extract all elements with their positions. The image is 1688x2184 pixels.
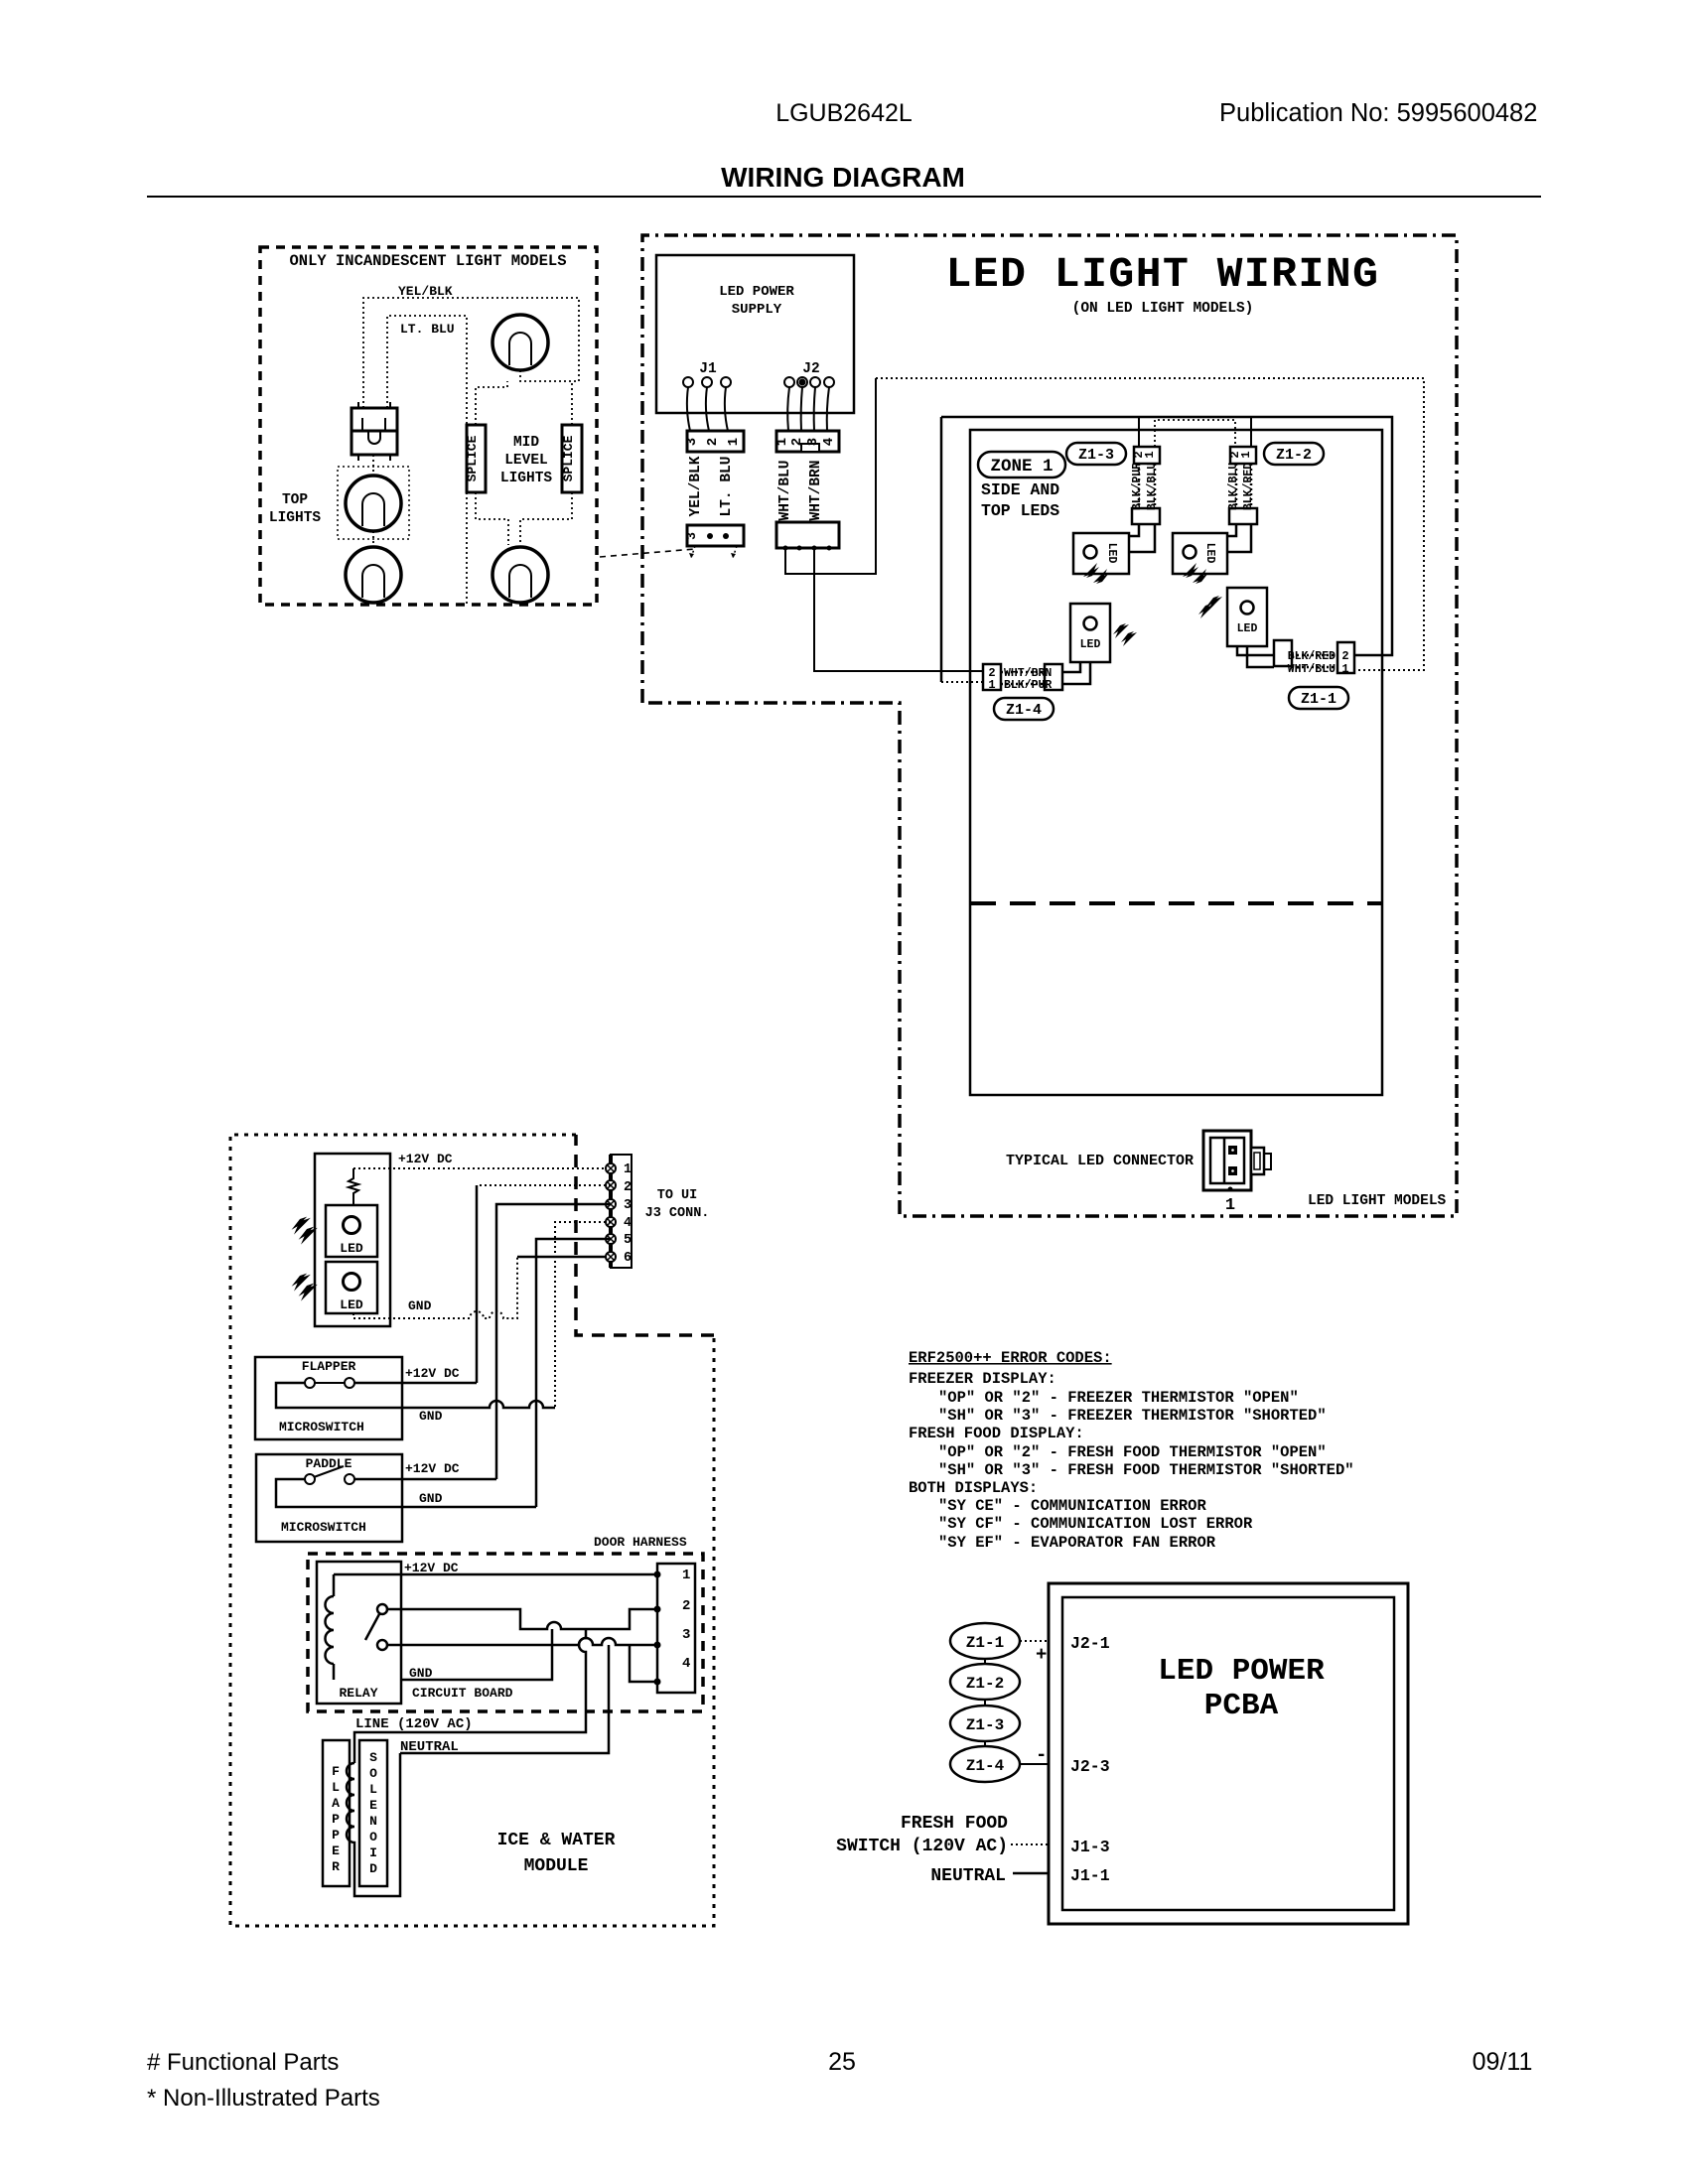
- svg-text:MID: MID: [513, 435, 539, 451]
- svg-text:1: 1: [774, 438, 790, 446]
- svg-text:25: 25: [828, 2048, 856, 2076]
- svg-text:L: L: [332, 1780, 340, 1795]
- svg-text:I: I: [369, 1845, 377, 1860]
- svg-text:J1-3: J1-3: [1070, 1838, 1110, 1856]
- svg-text:MICROSWITCH: MICROSWITCH: [279, 1420, 364, 1434]
- svg-text:P: P: [332, 1828, 340, 1843]
- svg-text:"SH" OR "3" - FRESH FOOD THERM: "SH" OR "3" - FRESH FOOD THERMISTOR "SHO…: [938, 1461, 1354, 1479]
- svg-text:"SH" OR "3" - FREEZER THERMIST: "SH" OR "3" - FREEZER THERMISTOR "SHORTE…: [938, 1407, 1327, 1425]
- svg-text:J2-1: J2-1: [1070, 1634, 1110, 1653]
- svg-text:+12V DC: +12V DC: [405, 1366, 460, 1381]
- svg-text:Z1-3: Z1-3: [966, 1716, 1004, 1734]
- svg-text:"SY CE" - COMMUNICATION ERROR: "SY CE" - COMMUNICATION ERROR: [938, 1497, 1206, 1515]
- svg-text:3: 3: [684, 438, 700, 446]
- svg-text:# Functional Parts: # Functional Parts: [147, 2049, 339, 2076]
- svg-text:"SY EF" - EVAPORATOR FAN ERROR: "SY EF" - EVAPORATOR FAN ERROR: [938, 1534, 1216, 1552]
- svg-text:5: 5: [624, 1233, 632, 1248]
- svg-text:O: O: [369, 1766, 377, 1781]
- svg-text:WHT/BLU: WHT/BLU: [1288, 663, 1336, 676]
- svg-text:LGUB2642L: LGUB2642L: [775, 99, 913, 127]
- svg-text:LEVEL: LEVEL: [504, 453, 548, 469]
- svg-text:BOTH DISPLAYS:: BOTH DISPLAYS:: [909, 1479, 1038, 1497]
- svg-text:1: 1: [988, 678, 995, 692]
- svg-text:-: -: [1036, 1744, 1047, 1766]
- svg-text:P: P: [332, 1812, 340, 1827]
- svg-text:2: 2: [1341, 649, 1348, 663]
- svg-text:2: 2: [705, 438, 721, 446]
- svg-text:ICE & WATER: ICE & WATER: [497, 1831, 616, 1850]
- svg-text:2: 2: [682, 1598, 690, 1614]
- svg-text:LED: LED: [1203, 543, 1216, 564]
- svg-text:ZONE 1: ZONE 1: [990, 457, 1053, 477]
- svg-text:J2-3: J2-3: [1070, 1757, 1110, 1776]
- svg-text:4: 4: [682, 1656, 690, 1672]
- svg-text:L: L: [369, 1782, 377, 1797]
- svg-text:ONLY INCANDESCENT LIGHT MODELS: ONLY INCANDESCENT LIGHT MODELS: [289, 252, 566, 270]
- svg-text:YEL/BLK: YEL/BLK: [398, 284, 453, 299]
- svg-text:LT. BLU: LT. BLU: [719, 457, 735, 517]
- svg-text:R: R: [332, 1859, 340, 1874]
- svg-text:Z1-1: Z1-1: [966, 1634, 1004, 1652]
- svg-text:4: 4: [624, 1216, 632, 1231]
- svg-text:E: E: [332, 1843, 340, 1858]
- svg-text:BLK/RED: BLK/RED: [1288, 650, 1336, 663]
- svg-text:SPLICE: SPLICE: [465, 435, 480, 481]
- svg-text:1: 1: [1341, 662, 1348, 676]
- svg-text:WHT/BRN: WHT/BRN: [808, 461, 824, 521]
- svg-text:J2: J2: [802, 361, 819, 377]
- svg-text:YEL/BLK: YEL/BLK: [688, 456, 704, 516]
- svg-text:3: 3: [805, 438, 821, 446]
- svg-text:2: 2: [624, 1180, 632, 1195]
- svg-text:(ON LED LIGHT MODELS): (ON LED LIGHT MODELS): [1072, 301, 1254, 317]
- svg-text:LED: LED: [1237, 622, 1258, 635]
- svg-text:E: E: [369, 1798, 377, 1813]
- svg-text:LED: LED: [340, 1241, 363, 1256]
- svg-text:Z1-3: Z1-3: [1078, 447, 1114, 464]
- svg-text:NEUTRAL: NEUTRAL: [930, 1866, 1006, 1886]
- svg-text:ERF2500++ ERROR CODES:: ERF2500++ ERROR CODES:: [909, 1349, 1112, 1367]
- svg-text:BLK/PUR: BLK/PUR: [1131, 463, 1144, 510]
- svg-text:TYPICAL LED CONNECTOR: TYPICAL LED CONNECTOR: [1006, 1153, 1194, 1169]
- svg-text:DOOR HARNESS: DOOR HARNESS: [594, 1535, 687, 1550]
- svg-text:Z1-2: Z1-2: [966, 1675, 1004, 1693]
- svg-text:1: 1: [1143, 451, 1157, 458]
- svg-text:MODULE: MODULE: [524, 1856, 589, 1876]
- svg-text:WHT/BLU: WHT/BLU: [777, 461, 793, 521]
- svg-text:* Non-Illustrated Parts: * Non-Illustrated Parts: [147, 2085, 380, 2112]
- svg-text:TOP LEDS: TOP LEDS: [981, 501, 1059, 520]
- svg-text:LED: LED: [1080, 638, 1101, 651]
- svg-text:LED POWER: LED POWER: [719, 284, 794, 300]
- svg-text:FRESH FOOD: FRESH FOOD: [901, 1814, 1008, 1834]
- svg-text:LT. BLU: LT. BLU: [400, 322, 455, 337]
- svg-text:LED POWER: LED POWER: [1158, 1654, 1325, 1689]
- svg-text:Publication No: 5995600482: Publication No: 5995600482: [1219, 99, 1537, 127]
- svg-text:S: S: [369, 1750, 377, 1765]
- svg-text:GND: GND: [419, 1491, 443, 1506]
- svg-text:LED: LED: [340, 1297, 363, 1312]
- svg-text:"OP" OR "2" - FRESH FOOD THERM: "OP" OR "2" - FRESH FOOD THERMISTOR "OPE…: [938, 1443, 1327, 1461]
- svg-text:LINE (120V AC): LINE (120V AC): [355, 1716, 473, 1732]
- svg-text:3: 3: [684, 532, 699, 540]
- svg-text:LED: LED: [1105, 543, 1118, 564]
- svg-text:2: 2: [789, 438, 805, 446]
- svg-text:TO UI: TO UI: [657, 1188, 698, 1203]
- svg-text:BLK/BLU: BLK/BLU: [1146, 463, 1159, 510]
- svg-text:BLK/PUR: BLK/PUR: [1004, 679, 1052, 692]
- svg-text:"SY CF" - COMMUNICATION LOST E: "SY CF" - COMMUNICATION LOST ERROR: [938, 1515, 1253, 1533]
- svg-text:Z1-1: Z1-1: [1301, 691, 1336, 708]
- svg-text:09/11: 09/11: [1473, 2048, 1533, 2076]
- svg-text:LED LIGHT WIRING: LED LIGHT WIRING: [946, 250, 1380, 299]
- svg-text:Z1-4: Z1-4: [966, 1757, 1005, 1775]
- svg-text:GND: GND: [419, 1409, 443, 1424]
- svg-text:FRESH FOOD DISPLAY:: FRESH FOOD DISPLAY:: [909, 1425, 1084, 1442]
- svg-text:F: F: [332, 1764, 340, 1779]
- svg-text:N: N: [369, 1814, 377, 1829]
- svg-text:SUPPLY: SUPPLY: [732, 302, 782, 318]
- svg-text:6: 6: [624, 1251, 632, 1266]
- svg-text:SIDE AND: SIDE AND: [981, 480, 1059, 499]
- svg-text:FLAPPER: FLAPPER: [302, 1359, 356, 1374]
- svg-text:1: 1: [1239, 451, 1253, 458]
- svg-text:PADDLE: PADDLE: [306, 1456, 352, 1471]
- svg-text:GND: GND: [408, 1298, 432, 1313]
- svg-text:MICROSWITCH: MICROSWITCH: [281, 1520, 366, 1535]
- svg-text:+: +: [1036, 1644, 1047, 1666]
- svg-text:J1-1: J1-1: [1070, 1866, 1110, 1885]
- svg-text:BLK/RED: BLK/RED: [1242, 463, 1255, 510]
- svg-text:FREEZER DISPLAY:: FREEZER DISPLAY:: [909, 1370, 1056, 1388]
- svg-text:J3 CONN.: J3 CONN.: [645, 1206, 710, 1221]
- svg-text:J1: J1: [699, 361, 717, 377]
- svg-text:+12V DC: +12V DC: [405, 1461, 460, 1476]
- svg-text:3: 3: [682, 1627, 690, 1643]
- svg-text:O: O: [369, 1830, 377, 1844]
- svg-text:Z1-2: Z1-2: [1276, 447, 1312, 464]
- svg-text:1: 1: [682, 1568, 690, 1583]
- svg-text:PCBA: PCBA: [1204, 1689, 1279, 1723]
- svg-text:LED LIGHT MODELS: LED LIGHT MODELS: [1308, 1193, 1447, 1209]
- svg-text:"OP" OR "2" - FREEZER THERMIST: "OP" OR "2" - FREEZER THERMISTOR "OPEN": [938, 1389, 1299, 1407]
- svg-text:4: 4: [821, 438, 837, 446]
- svg-text:1: 1: [726, 438, 742, 446]
- svg-text:1: 1: [1225, 1196, 1235, 1215]
- svg-text:D: D: [369, 1861, 377, 1876]
- svg-text:RELAY: RELAY: [339, 1686, 377, 1701]
- svg-text:SPLICE: SPLICE: [561, 435, 576, 481]
- svg-text:+12V DC: +12V DC: [398, 1152, 453, 1166]
- svg-text:SWITCH (120V AC): SWITCH (120V AC): [836, 1837, 1008, 1856]
- svg-text:A: A: [332, 1796, 340, 1811]
- svg-text:WIRING DIAGRAM: WIRING DIAGRAM: [721, 162, 965, 193]
- svg-text:BLK/BLU: BLK/BLU: [1227, 463, 1240, 510]
- svg-text:TOP: TOP: [282, 492, 308, 508]
- svg-text:Z1-4: Z1-4: [1006, 702, 1042, 719]
- svg-text:LIGHTS: LIGHTS: [269, 510, 322, 526]
- svg-text:LIGHTS: LIGHTS: [500, 471, 553, 486]
- svg-text:CIRCUIT BOARD: CIRCUIT BOARD: [412, 1686, 513, 1701]
- svg-text:3: 3: [624, 1198, 632, 1213]
- svg-text:1: 1: [624, 1162, 632, 1177]
